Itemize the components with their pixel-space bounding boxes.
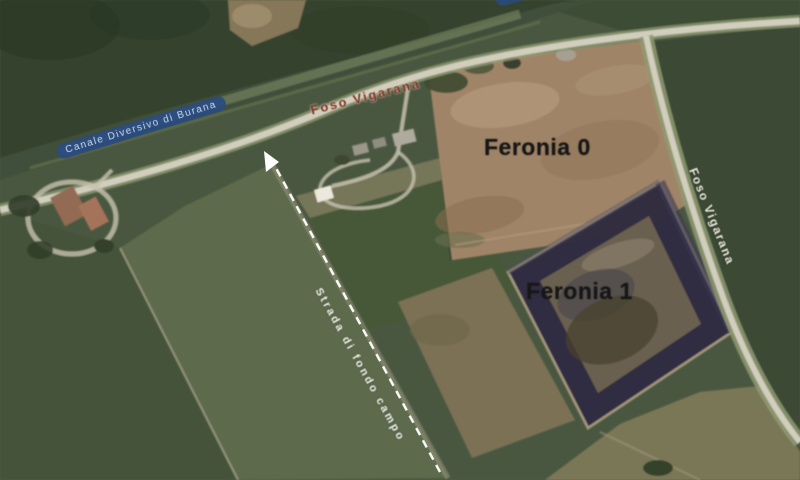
satellite-map: Canale Diversivo di Burana Foso Vigarana… bbox=[0, 0, 800, 480]
feronia-0-label: Feronia 0 bbox=[484, 134, 591, 161]
terrain-layer bbox=[0, 0, 800, 480]
feronia-1-label: Feronia 1 bbox=[526, 278, 633, 305]
